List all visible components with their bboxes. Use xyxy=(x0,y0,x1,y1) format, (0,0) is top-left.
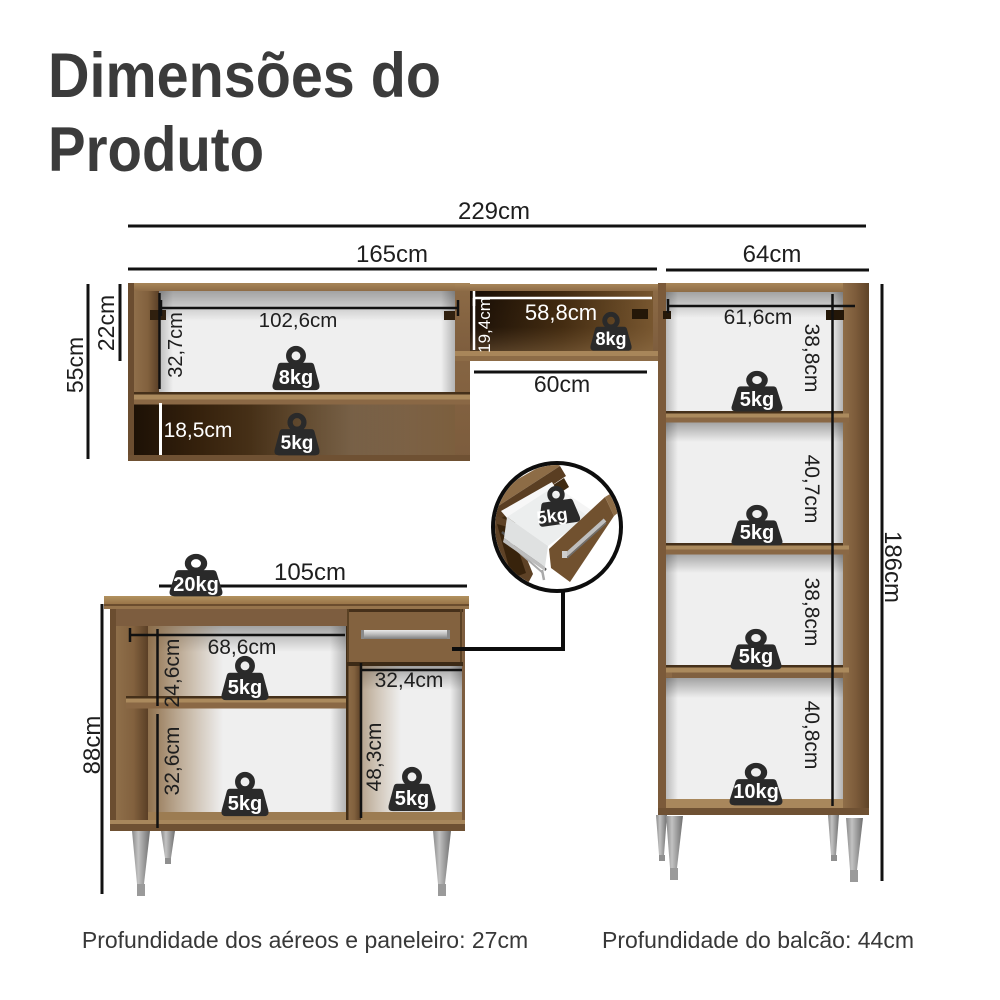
svg-text:186cm: 186cm xyxy=(879,531,906,603)
svg-text:8kg: 8kg xyxy=(595,329,626,349)
svg-text:5kg: 5kg xyxy=(740,389,774,411)
svg-text:22cm: 22cm xyxy=(93,295,119,351)
svg-text:40,7cm: 40,7cm xyxy=(800,455,823,524)
svg-text:102,6cm: 102,6cm xyxy=(259,309,338,332)
svg-text:24,6cm: 24,6cm xyxy=(161,639,184,708)
svg-text:Dimensões do: Dimensões do xyxy=(48,41,441,111)
svg-text:18,5cm: 18,5cm xyxy=(164,419,233,442)
svg-text:5kg: 5kg xyxy=(535,504,569,528)
svg-text:165cm: 165cm xyxy=(356,241,428,268)
svg-text:Profundidade do balcão: 44cm: Profundidade do balcão: 44cm xyxy=(602,927,914,953)
svg-text:58,8cm: 58,8cm xyxy=(525,300,597,325)
svg-text:20kg: 20kg xyxy=(173,574,219,596)
svg-text:5kg: 5kg xyxy=(740,522,774,544)
svg-text:48,3cm: 48,3cm xyxy=(363,723,386,792)
svg-text:5kg: 5kg xyxy=(739,646,773,668)
svg-text:55cm: 55cm xyxy=(62,337,88,393)
svg-text:38,8cm: 38,8cm xyxy=(800,578,823,647)
svg-text:61,6cm: 61,6cm xyxy=(724,306,793,329)
svg-text:Profundidade dos aéreos e pane: Profundidade dos aéreos e paneleiro: 27c… xyxy=(82,927,528,953)
svg-text:60cm: 60cm xyxy=(534,371,590,397)
svg-text:Produto: Produto xyxy=(48,115,264,185)
svg-text:68,6cm: 68,6cm xyxy=(208,636,277,659)
svg-text:229cm: 229cm xyxy=(458,198,530,225)
svg-text:8kg: 8kg xyxy=(279,367,313,389)
svg-text:32,4cm: 32,4cm xyxy=(375,669,444,692)
svg-text:5kg: 5kg xyxy=(395,788,429,810)
svg-text:40,8cm: 40,8cm xyxy=(800,701,823,770)
svg-text:19,4cm: 19,4cm xyxy=(475,297,494,353)
svg-text:5kg: 5kg xyxy=(281,433,314,454)
svg-text:38,8cm: 38,8cm xyxy=(800,324,823,393)
svg-text:5kg: 5kg xyxy=(228,677,262,699)
svg-text:10kg: 10kg xyxy=(733,781,779,803)
svg-text:5kg: 5kg xyxy=(228,793,262,815)
svg-text:88cm: 88cm xyxy=(79,716,106,775)
svg-text:32,6cm: 32,6cm xyxy=(161,727,184,796)
svg-text:105cm: 105cm xyxy=(274,559,346,586)
svg-text:32,7cm: 32,7cm xyxy=(165,312,187,378)
svg-text:64cm: 64cm xyxy=(743,241,802,268)
